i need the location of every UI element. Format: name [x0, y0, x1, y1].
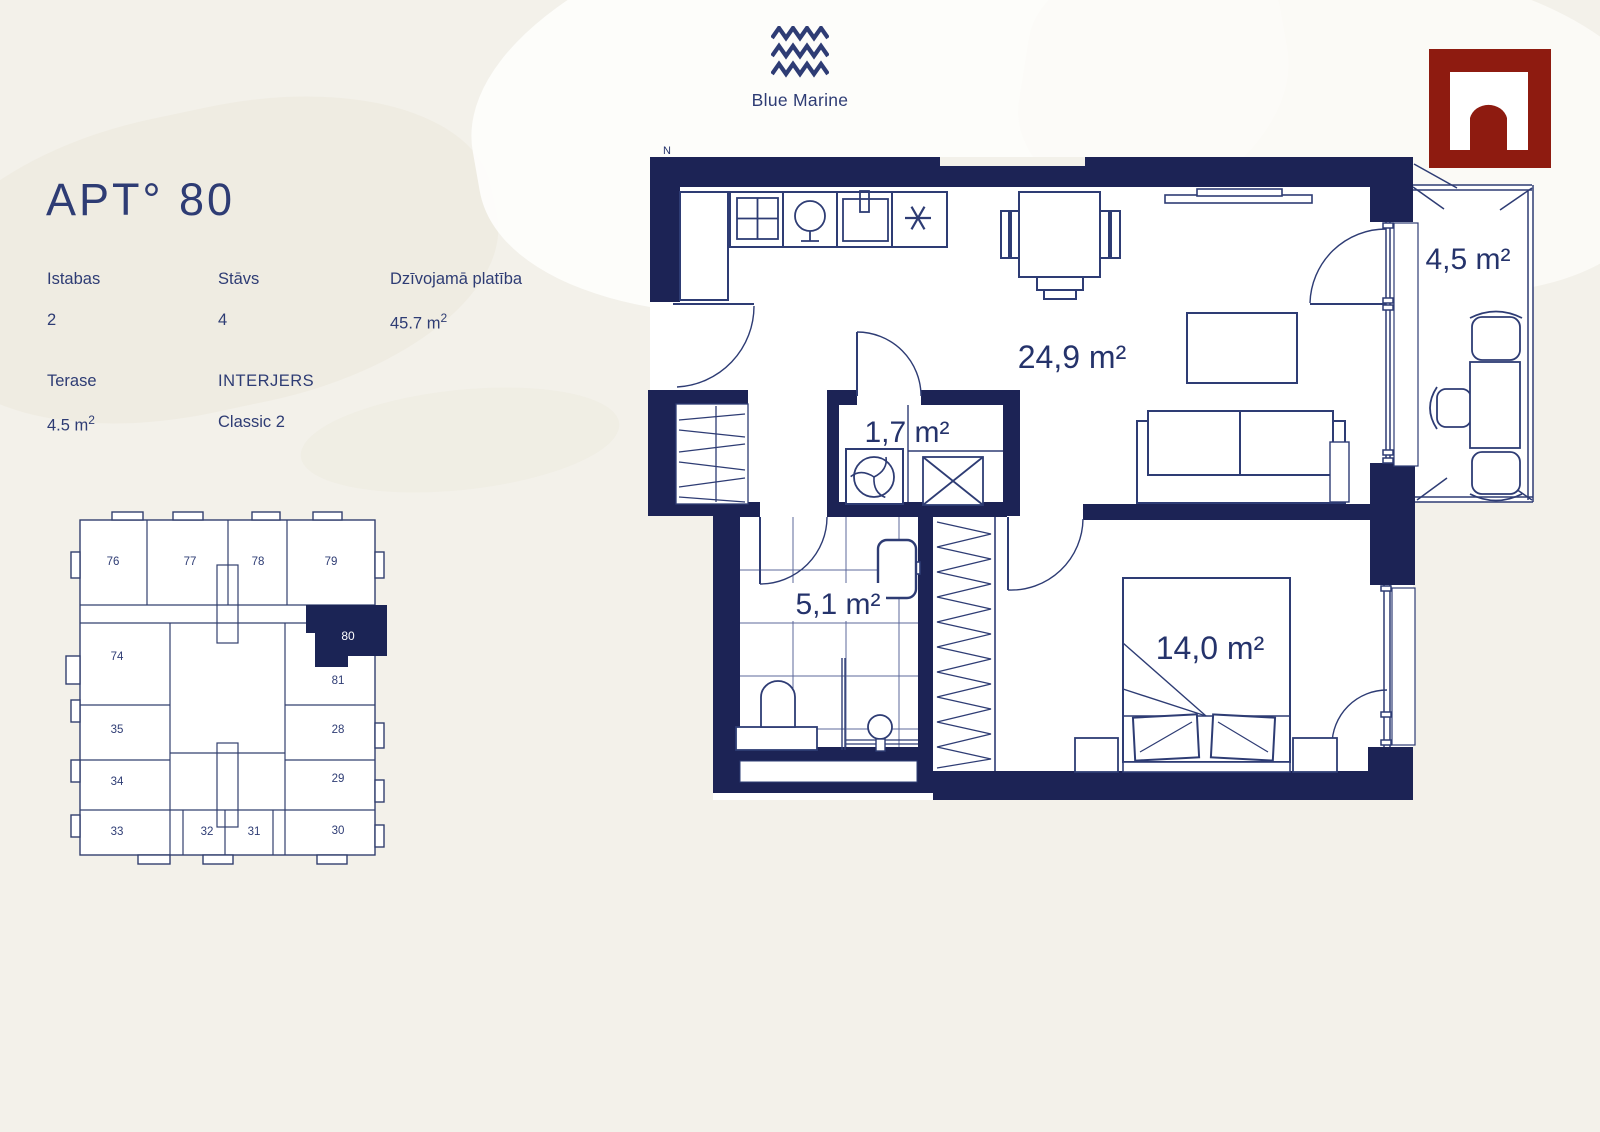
sofa: [1137, 411, 1345, 503]
bathroom-area-label: 5,1 m²: [795, 588, 880, 621]
unit-label: 74: [111, 651, 124, 663]
apartment-title: APT° 80: [46, 174, 235, 226]
interior-label: INTERJERS: [218, 372, 314, 391]
living-area-sup: 2: [440, 311, 447, 325]
coffee-table: [1187, 313, 1297, 383]
unit-label: 33: [111, 826, 124, 838]
floor-label: Stāvs: [218, 270, 259, 289]
unit-label: 34: [111, 776, 124, 788]
living-area-value: 45.7 m2: [390, 311, 447, 334]
terrace-chair: [1472, 452, 1520, 494]
living-area-label: Dzīvojamā platība: [390, 270, 522, 289]
unit-label: 35: [111, 724, 124, 736]
floor-plan: N 24,9 m² 1,7 m² 5,1 m² 14,0 m² 4,5 m²: [0, 0, 1600, 1132]
terrace-sup: 2: [88, 413, 95, 427]
unit-label: 30: [332, 825, 345, 837]
unit-label: 76: [107, 556, 120, 568]
unit-label-highlighted: 80: [341, 629, 355, 643]
hall-wardrobe: [676, 404, 748, 504]
floor-value: 4: [218, 311, 227, 330]
brand-name: Blue Marine: [690, 90, 910, 111]
terrace-value: 4.5 m2: [47, 413, 95, 436]
north-label: N: [663, 145, 671, 157]
unit-label: 79: [325, 556, 338, 568]
nightstand: [1293, 738, 1337, 772]
nightstand: [1075, 738, 1118, 772]
fridge: [680, 192, 728, 300]
unit-label: 32: [201, 826, 214, 838]
wall-notch: [940, 157, 1085, 166]
shower-drain-icon: [868, 715, 892, 739]
unit-label: 28: [332, 724, 345, 736]
wall-duct: [740, 761, 917, 782]
rooms-label: Istabas: [47, 270, 100, 289]
arch-logo: [1429, 49, 1551, 168]
fan-icon: [846, 449, 903, 504]
living-room-area-label: 24,9 m²: [1018, 339, 1127, 375]
interior-value: Classic 2: [218, 413, 285, 432]
unit-label: 31: [248, 826, 261, 838]
unit-label: 78: [252, 556, 265, 568]
wave-logo-icon: [771, 26, 829, 82]
terrace-chair: [1437, 389, 1471, 427]
terrace-chair: [1472, 317, 1520, 360]
terrace-label: Terase: [47, 372, 97, 391]
radiator: [1330, 442, 1349, 502]
terrace-number: 4.5 m: [47, 417, 88, 435]
unit-label: 77: [184, 556, 197, 568]
terrace-area-label: 4,5 m²: [1425, 243, 1510, 276]
bedroom-area-label: 14,0 m²: [1156, 630, 1265, 666]
living-area-number: 45.7 m: [390, 315, 440, 333]
rooms-value: 2: [47, 311, 56, 330]
unit-label: 29: [332, 773, 345, 785]
terrace-table: [1470, 362, 1520, 448]
shaft-icon: [923, 457, 983, 505]
site-map: 76 77 78 79 74 80 81 35 28 34 29 33 32 3…: [66, 512, 387, 864]
bed: [1123, 578, 1290, 772]
unit-label: 81: [332, 675, 345, 687]
tech-room-area-label: 1,7 m²: [864, 416, 949, 449]
